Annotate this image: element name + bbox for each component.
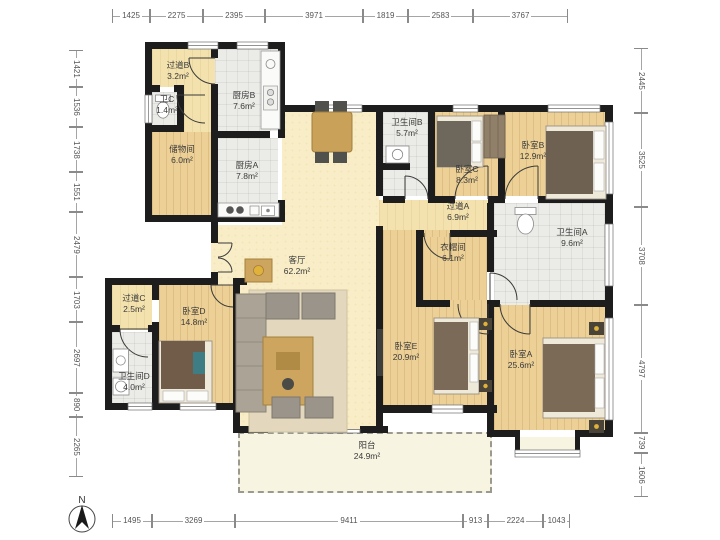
dimension-right-4: 739 bbox=[634, 433, 648, 453]
room-name: 衣帽间 bbox=[440, 242, 466, 253]
dimension-value: 1425 bbox=[120, 12, 142, 20]
dimension-value: 2275 bbox=[166, 12, 188, 20]
dimension-left-5: 1703 bbox=[69, 277, 83, 322]
dimension-value: 3708 bbox=[637, 245, 645, 267]
dimension-value: 3269 bbox=[183, 517, 205, 525]
room-name: 卧室C bbox=[455, 164, 478, 175]
room-area: 14.8m² bbox=[181, 317, 207, 328]
dimension-value: 1043 bbox=[546, 517, 568, 525]
dimension-top-0: 1425 bbox=[112, 9, 150, 23]
room-name: 卫生间B bbox=[391, 117, 422, 128]
dimension-bottom-2: 9411 bbox=[235, 514, 463, 528]
room-label-bedroom-d: 卧室D14.8m² bbox=[181, 306, 207, 328]
room-area: 20.9m² bbox=[393, 352, 419, 363]
room-name: 卫生间D bbox=[118, 371, 150, 382]
room-label-storage: 储物间6.0m² bbox=[169, 144, 195, 166]
room-name: 卧室D bbox=[181, 306, 207, 317]
floorplan-canvas: N 过道B3.2m²卫C1.4m²厨房B7.6m²储物间6.0m²厨房A7.8m… bbox=[0, 0, 720, 540]
room-name: 阳台 bbox=[354, 440, 380, 451]
room-area: 6.0m² bbox=[169, 155, 195, 166]
room-name: 卫C bbox=[156, 94, 178, 105]
room-name: 过道A bbox=[447, 201, 470, 212]
room-area: 25.6m² bbox=[508, 360, 534, 371]
dimension-value: 4797 bbox=[637, 358, 645, 380]
room-area: 7.8m² bbox=[236, 171, 259, 182]
dimension-left-3: 1551 bbox=[69, 172, 83, 212]
dimension-top-2: 2395 bbox=[203, 9, 265, 23]
dimension-value: 890 bbox=[72, 396, 80, 413]
room-label-bedroom-a: 卧室A25.6m² bbox=[508, 349, 534, 371]
dimension-left-4: 2479 bbox=[69, 212, 83, 277]
dimension-value: 3525 bbox=[637, 149, 645, 171]
room-name: 厨房A bbox=[236, 160, 259, 171]
dimension-value: 1819 bbox=[375, 12, 397, 20]
dimension-value: 2395 bbox=[223, 12, 245, 20]
room-area: 8.3m² bbox=[455, 175, 478, 186]
room-name: 卧室E bbox=[393, 341, 419, 352]
room-name: 过道C bbox=[122, 293, 145, 304]
dimension-value: 3971 bbox=[303, 12, 325, 20]
room-name: 卧室B bbox=[520, 140, 546, 151]
room-area: 2.5m² bbox=[122, 304, 145, 315]
room-area: 24.9m² bbox=[354, 451, 380, 462]
dimension-top-1: 2275 bbox=[150, 9, 203, 23]
room-label-bedroom-c: 卧室C8.3m² bbox=[455, 164, 478, 186]
dimension-top-5: 2583 bbox=[408, 9, 473, 23]
room-label-kitchen-a: 厨房A7.8m² bbox=[236, 160, 259, 182]
dimension-left-6: 2697 bbox=[69, 322, 83, 393]
room-name: 卫生间A bbox=[556, 227, 587, 238]
dimension-bottom-3: 913 bbox=[463, 514, 488, 528]
dimension-value: 2583 bbox=[430, 12, 452, 20]
dimension-right-3: 4797 bbox=[634, 305, 648, 433]
room-label-balcony: 阳台24.9m² bbox=[354, 440, 380, 462]
room-area: 4.0m² bbox=[118, 382, 150, 393]
dimension-value: 739 bbox=[637, 434, 645, 451]
dimension-value: 1703 bbox=[72, 289, 80, 311]
room-area: 6.9m² bbox=[447, 212, 470, 223]
room-label-toilet-c: 卫C1.4m² bbox=[156, 94, 178, 116]
dimension-left-2: 1738 bbox=[69, 127, 83, 172]
dimension-value: 2479 bbox=[72, 234, 80, 256]
room-name: 客厅 bbox=[284, 255, 310, 266]
room-area: 5.7m² bbox=[391, 128, 422, 139]
dimension-value: 3767 bbox=[510, 12, 532, 20]
room-name: 过道B bbox=[167, 60, 190, 71]
dimension-value: 1551 bbox=[72, 181, 80, 203]
room-area: 6.1m² bbox=[440, 253, 466, 264]
dimension-left-0: 1421 bbox=[69, 50, 83, 87]
dimension-value: 1421 bbox=[72, 58, 80, 80]
room-area: 62.2m² bbox=[284, 266, 310, 277]
room-label-bath-a: 卫生间A9.6m² bbox=[556, 227, 587, 249]
dimension-value: 2445 bbox=[637, 70, 645, 92]
room-area: 1.4m² bbox=[156, 105, 178, 116]
dimension-value: 1738 bbox=[72, 139, 80, 161]
room-name: 储物间 bbox=[169, 144, 195, 155]
room-label-kitchen-b: 厨房B7.6m² bbox=[233, 90, 256, 112]
room-label-hallway-b: 过道B3.2m² bbox=[167, 60, 190, 82]
room-label-living-a: 客厅62.2m² bbox=[284, 255, 310, 277]
dimension-value: 1536 bbox=[72, 96, 80, 118]
dimension-bottom-1: 3269 bbox=[152, 514, 235, 528]
dimension-value: 2697 bbox=[72, 347, 80, 369]
dimension-left-8: 2265 bbox=[69, 417, 83, 477]
room-label-bath-d: 卫生间D4.0m² bbox=[118, 371, 150, 393]
dimension-right-2: 3708 bbox=[634, 207, 648, 305]
dimension-right-0: 2445 bbox=[634, 48, 648, 113]
room-area: 9.6m² bbox=[556, 238, 587, 249]
room-label-bath-b: 卫生间B5.7m² bbox=[391, 117, 422, 139]
dimension-right-5: 1606 bbox=[634, 453, 648, 497]
dimension-value: 2224 bbox=[505, 517, 527, 525]
dimension-bottom-4: 2224 bbox=[488, 514, 543, 528]
room-area: 3.2m² bbox=[167, 71, 190, 82]
dimension-value: 1606 bbox=[637, 464, 645, 486]
dimension-bottom-5: 1043 bbox=[543, 514, 570, 528]
room-label-hallway-a: 过道A6.9m² bbox=[447, 201, 470, 223]
room-label-hallway-c: 过道C2.5m² bbox=[122, 293, 145, 315]
dimension-value: 9411 bbox=[338, 517, 359, 525]
dimension-value: 1495 bbox=[121, 517, 143, 525]
room-area: 7.6m² bbox=[233, 101, 256, 112]
room-label-bedroom-e: 卧室E20.9m² bbox=[393, 341, 419, 363]
dimension-right-1: 3525 bbox=[634, 113, 648, 207]
dimension-value: 913 bbox=[467, 517, 484, 525]
dimension-bottom-0: 1495 bbox=[112, 514, 152, 528]
room-area: 12.9m² bbox=[520, 151, 546, 162]
dimension-top-6: 3767 bbox=[473, 9, 568, 23]
room-name: 卧室A bbox=[508, 349, 534, 360]
dimension-left-7: 890 bbox=[69, 393, 83, 417]
dimension-left-1: 1536 bbox=[69, 87, 83, 127]
dimension-top-3: 3971 bbox=[265, 9, 363, 23]
room-label-bedroom-b: 卧室B12.9m² bbox=[520, 140, 546, 162]
room-label-cloakroom: 衣帽间6.1m² bbox=[440, 242, 466, 264]
room-name: 厨房B bbox=[233, 90, 256, 101]
dimension-top-4: 1819 bbox=[363, 9, 408, 23]
dimension-value: 2265 bbox=[72, 436, 80, 458]
